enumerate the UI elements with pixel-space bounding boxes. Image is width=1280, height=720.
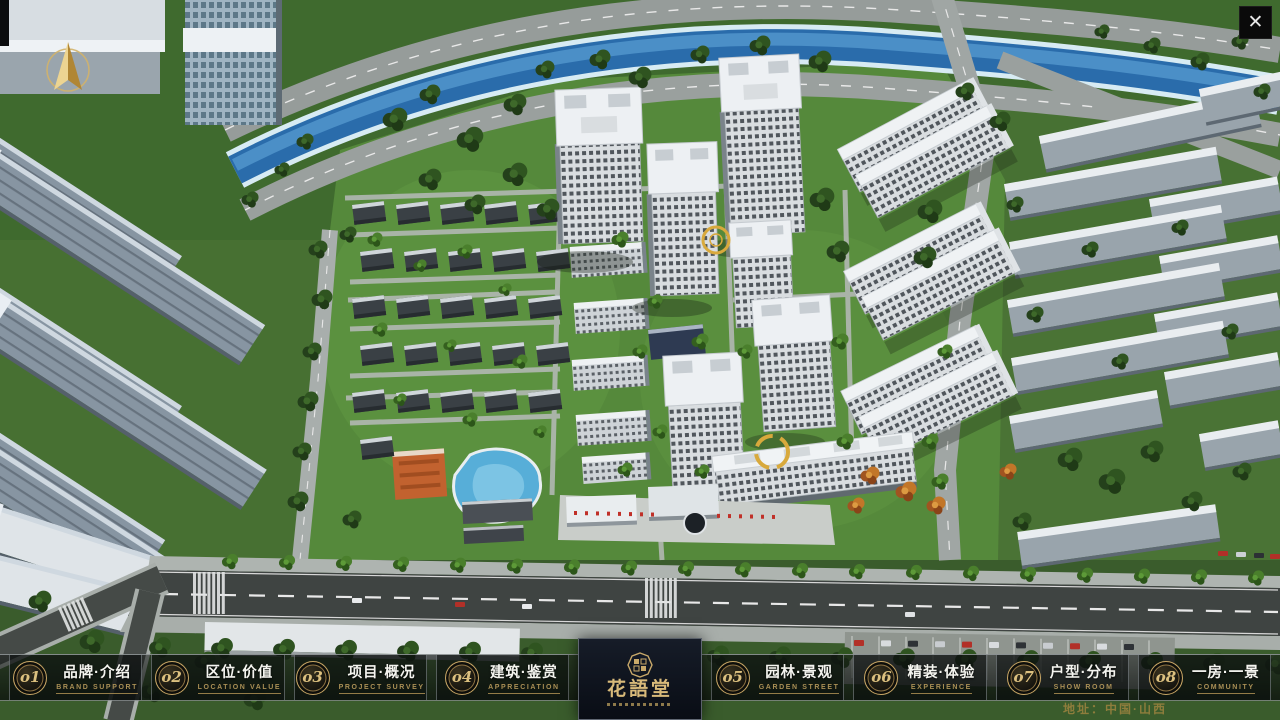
- menu-number-badge: o1: [13, 661, 47, 695]
- menu-item-garden-landscape[interactable]: o5 园林·景观GARDEN STREET: [711, 655, 844, 700]
- menu-item-architecture-appreciation[interactable]: o4 建筑·鉴赏APPRECIATION: [436, 655, 569, 700]
- menu-label-en: GARDEN STREET: [759, 684, 840, 694]
- menu-label-en: APPRECIATION: [488, 684, 560, 694]
- menu-label-en: LOCATION VALUE: [198, 684, 282, 694]
- gate-emblem: [684, 512, 706, 534]
- compass-icon: [40, 34, 100, 100]
- menu-label-cn: 一房·一景: [1192, 661, 1260, 682]
- aerial-rendering: [0, 0, 1280, 720]
- seal-icon: [627, 652, 653, 678]
- logo-subtitle-line: [607, 703, 673, 706]
- presentation-window: ✕ o1 品牌·介绍BRAND SUPPORT o2 区位·价值LOCATION…: [0, 0, 1280, 720]
- menu-item-interior-experience[interactable]: o6 精装·体验EXPERIENCE: [853, 655, 986, 700]
- menu-label-en: PROJECT SURVEY: [339, 684, 425, 694]
- angled-towers: [837, 77, 1027, 475]
- menu-label-en: EXPERIENCE: [911, 684, 972, 694]
- menu-label-cn: 户型·分布: [1050, 661, 1118, 682]
- menu-label-cn: 建筑·鉴赏: [490, 661, 558, 682]
- menu-item-brand-intro[interactable]: o1 品牌·介绍BRAND SUPPORT: [9, 655, 142, 700]
- menu-number-badge: o2: [155, 661, 189, 695]
- screen-edge-strip: [0, 0, 9, 46]
- orange-building: [392, 448, 447, 500]
- menu-item-one-room-one-view[interactable]: o8 一房·一景COMMUNITY: [1138, 655, 1271, 700]
- close-button[interactable]: ✕: [1239, 6, 1272, 39]
- menu-number-badge: o5: [716, 661, 750, 695]
- menu-label-cn: 精装·体验: [907, 661, 975, 682]
- close-icon: ✕: [1248, 11, 1264, 34]
- bottom-menu-bar: o1 品牌·介绍BRAND SUPPORT o2 区位·价值LOCATION V…: [0, 654, 1280, 701]
- menu-label-cn: 园林·景观: [765, 661, 833, 682]
- menu-number-badge: o8: [1149, 661, 1183, 695]
- menu-item-location-value[interactable]: o2 区位·价值LOCATION VALUE: [151, 655, 284, 700]
- menu-number-badge: o6: [864, 661, 898, 695]
- menu-number-badge: o3: [296, 661, 330, 695]
- project-logo-panel[interactable]: 花語堂: [578, 638, 702, 720]
- menu-item-floorplan-distribution[interactable]: o7 户型·分布SHOW ROOM: [996, 655, 1129, 700]
- menu-label-en: COMMUNITY: [1197, 684, 1255, 694]
- menu-number-badge: o7: [1007, 661, 1041, 695]
- project-name: 花語堂: [607, 679, 673, 700]
- menu-label-en: BRAND SUPPORT: [56, 684, 138, 694]
- menu-label-en: SHOW ROOM: [1054, 684, 1114, 694]
- menu-label-cn: 项目·概况: [348, 661, 416, 682]
- menu-item-project-overview[interactable]: o3 项目·概况PROJECT SURVEY: [294, 655, 427, 700]
- project-address: 地址：中国·山西: [1063, 700, 1167, 717]
- menu-number-badge: o4: [445, 661, 479, 695]
- menu-label-cn: 区位·价值: [205, 661, 273, 682]
- menu-label-cn: 品牌·介绍: [63, 661, 131, 682]
